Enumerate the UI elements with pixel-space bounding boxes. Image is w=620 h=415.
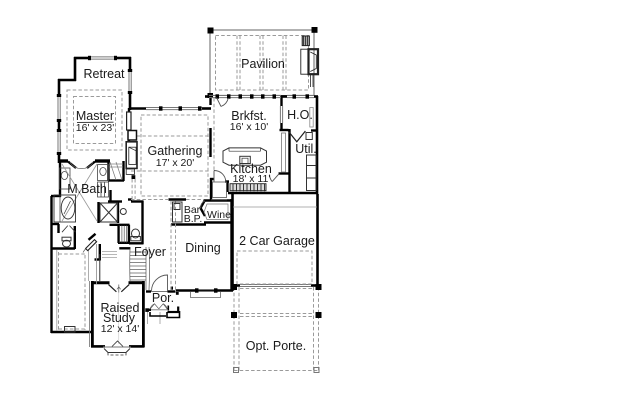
svg-text:Foyer: Foyer — [134, 245, 166, 259]
svg-text:18' x 11': 18' x 11' — [233, 173, 271, 185]
svg-text:Retreat: Retreat — [84, 67, 126, 81]
svg-text:16' x 10': 16' x 10' — [230, 121, 268, 133]
svg-text:Util.: Util. — [295, 142, 317, 156]
svg-text:16' x 23': 16' x 23' — [76, 122, 114, 134]
svg-text:H.O.: H.O. — [287, 108, 313, 122]
svg-text:Dining: Dining — [185, 241, 220, 255]
svg-text:Wine: Wine — [207, 209, 231, 221]
svg-text:2 Car Garage: 2 Car Garage — [239, 234, 315, 248]
svg-text:Gathering: Gathering — [148, 144, 203, 158]
svg-text:Master: Master — [76, 109, 114, 123]
svg-text:Opt. Porte.: Opt. Porte. — [246, 339, 306, 353]
svg-text:B.P.: B.P. — [184, 213, 203, 225]
svg-text:Por.: Por. — [152, 291, 174, 305]
svg-text:17' x 20': 17' x 20' — [156, 157, 194, 169]
svg-text:M.Bath: M.Bath — [67, 182, 107, 196]
svg-text:Pavilion: Pavilion — [241, 57, 285, 71]
svg-text:12' x 14': 12' x 14' — [101, 323, 139, 335]
